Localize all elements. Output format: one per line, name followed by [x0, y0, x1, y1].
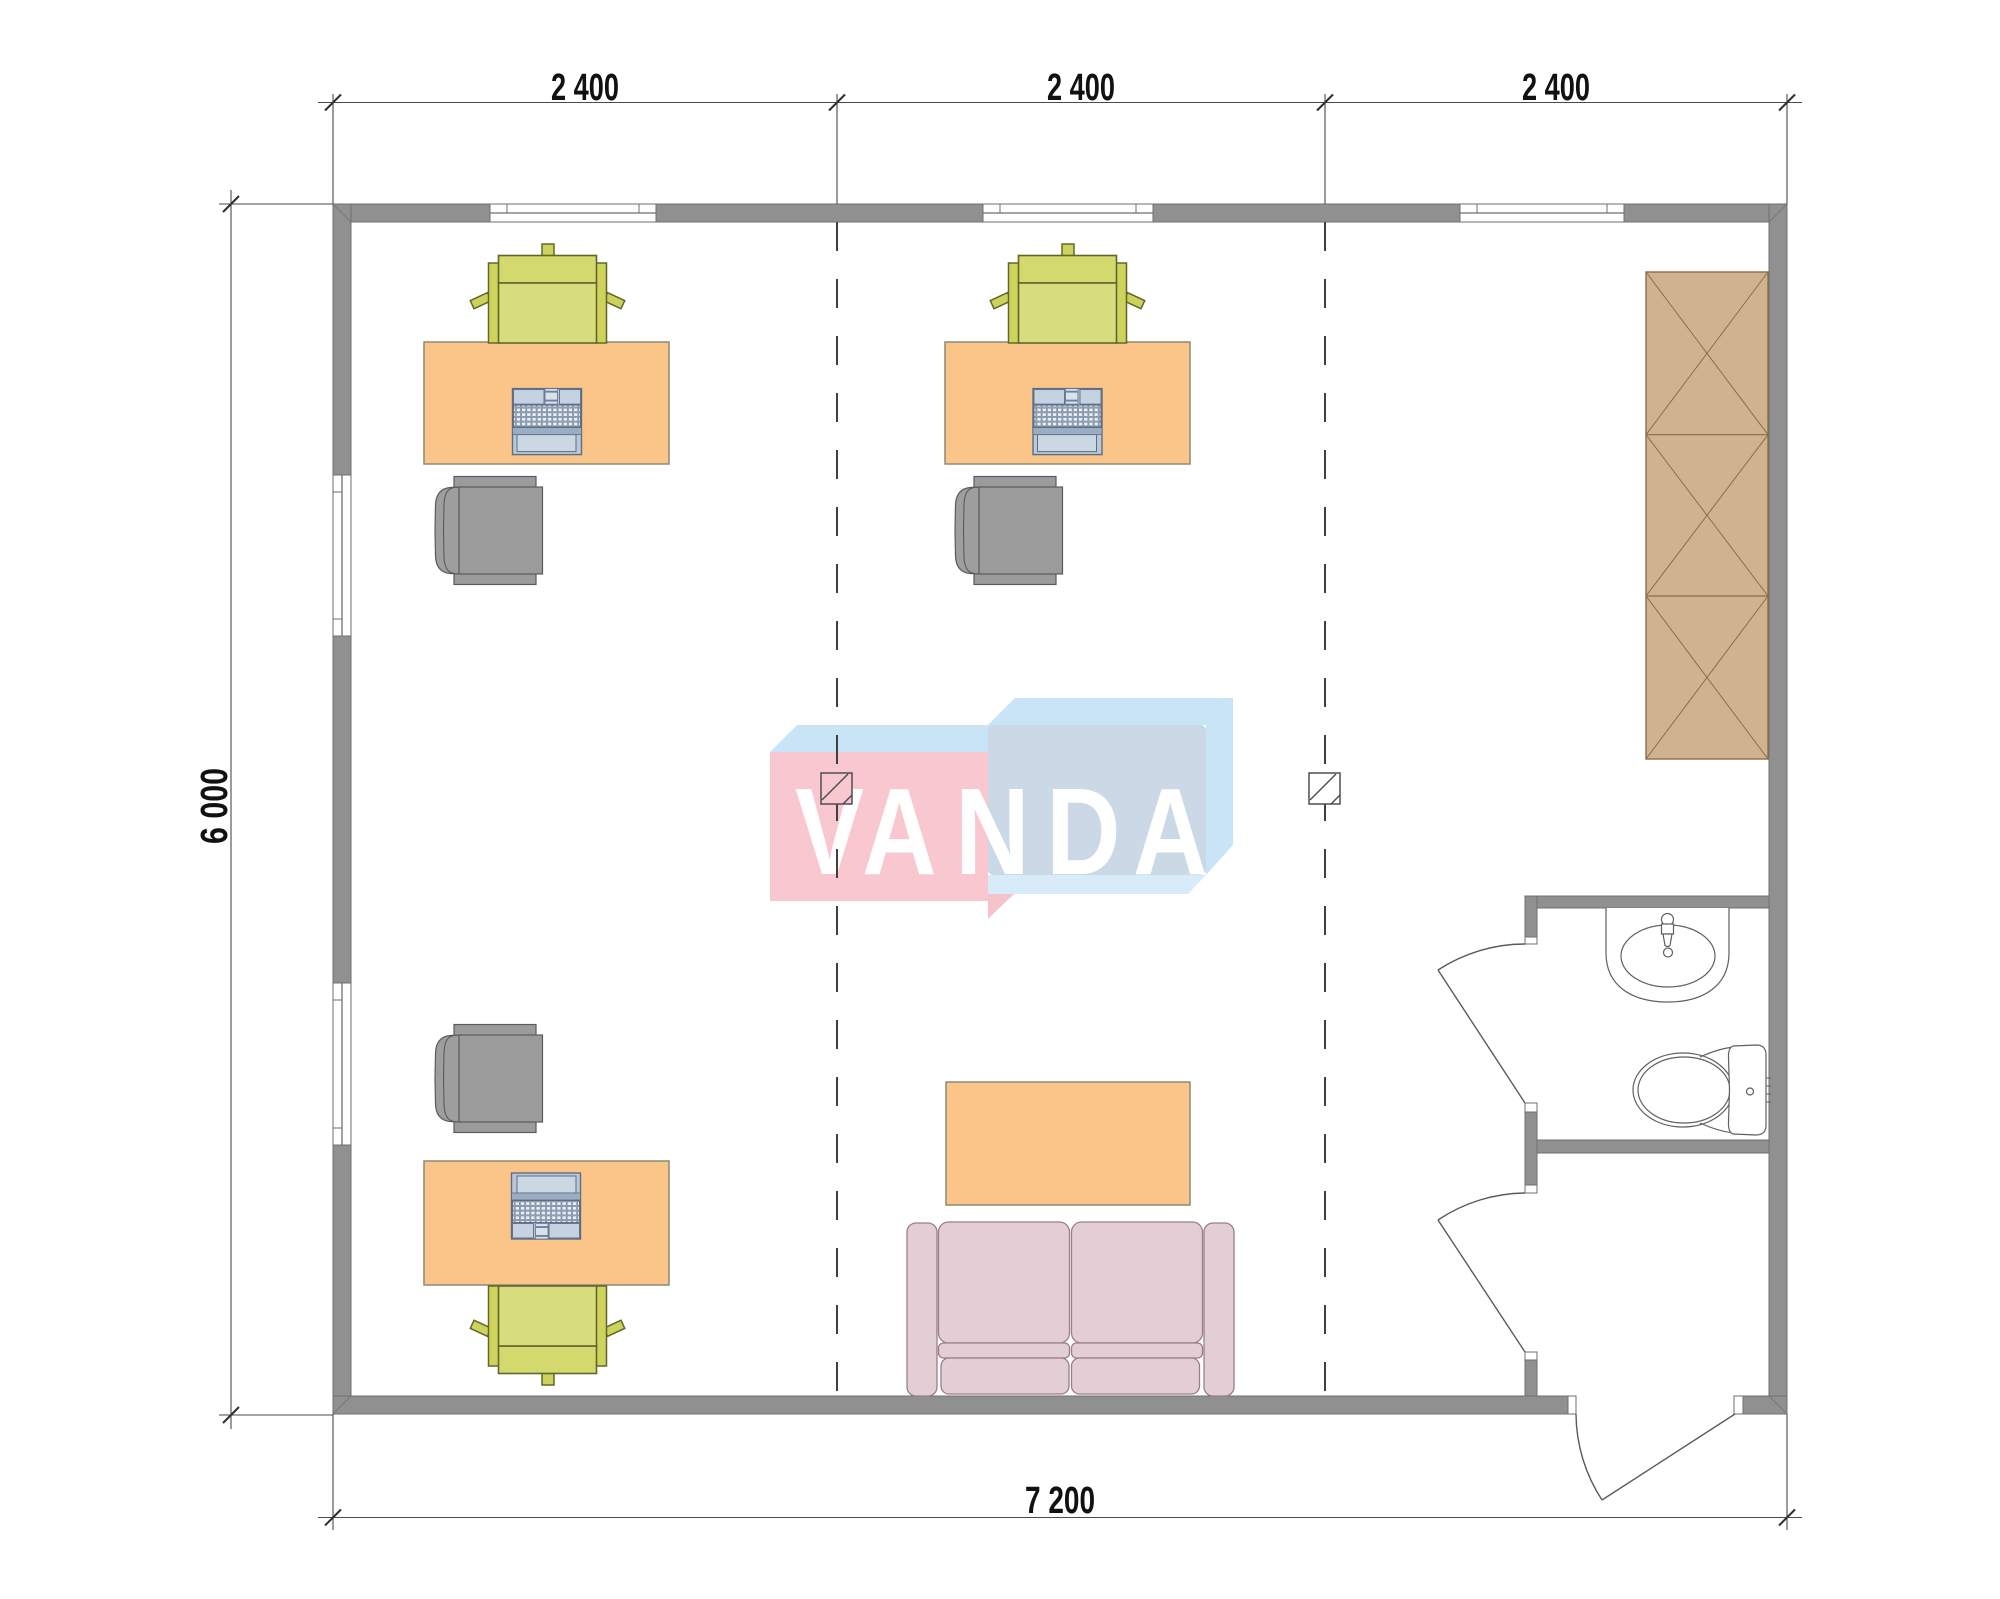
svg-text:2 400: 2 400	[1522, 67, 1590, 109]
svg-text:N: N	[955, 764, 1030, 902]
svg-text:A: A	[862, 764, 937, 902]
svg-text:D: D	[1046, 764, 1121, 902]
svg-text:7 200: 7 200	[1025, 1480, 1095, 1522]
svg-text:2 400: 2 400	[551, 67, 619, 109]
svg-text:2 400: 2 400	[1047, 67, 1115, 109]
svg-text:6 000: 6 000	[194, 768, 236, 844]
svg-text:A: A	[1133, 764, 1208, 902]
